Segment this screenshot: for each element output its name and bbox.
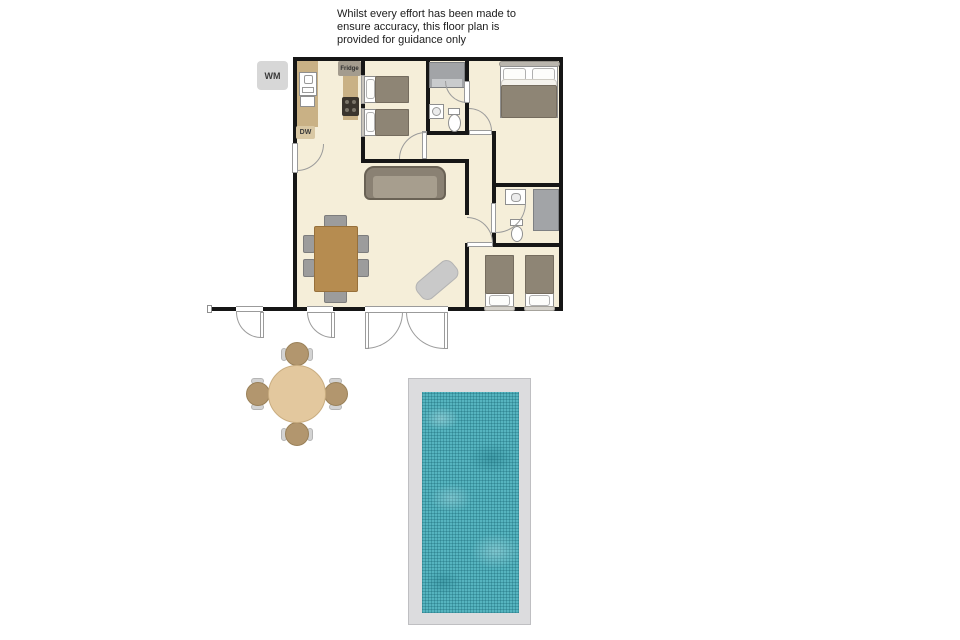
shower-icon xyxy=(533,189,559,231)
double-bed-icon xyxy=(499,61,560,119)
wall xyxy=(492,183,559,187)
dining-chair-icon xyxy=(357,259,369,277)
patio-chair-icon xyxy=(283,340,311,368)
dishwasher-label: DW xyxy=(296,126,315,139)
door-leaf xyxy=(444,312,448,349)
door-arc-icon xyxy=(365,312,403,349)
toilet-icon xyxy=(448,108,462,133)
door-arc-icon xyxy=(307,312,333,338)
wall xyxy=(492,243,559,247)
single-bed-icon xyxy=(361,108,409,137)
dining-chair-icon xyxy=(357,235,369,253)
door-arc-icon xyxy=(445,81,467,103)
basin-icon xyxy=(429,104,444,119)
wall xyxy=(465,159,469,215)
door-arc-icon xyxy=(236,312,261,338)
sink-bowl-icon xyxy=(302,87,314,93)
wall xyxy=(492,131,496,203)
washing-machine-label: WM xyxy=(257,61,288,90)
wall xyxy=(361,159,469,163)
patio-chair-icon xyxy=(322,380,350,408)
door-arc-icon xyxy=(469,108,492,131)
floor-plan-page: Whilst every effort has been made to ens… xyxy=(0,0,960,640)
wall xyxy=(465,243,469,307)
single-bed-icon xyxy=(484,255,515,312)
door-arc-icon xyxy=(406,312,444,349)
hob-icon xyxy=(342,97,359,116)
pool-water xyxy=(422,392,519,613)
dining-table-icon xyxy=(314,226,358,292)
patio-chair-icon xyxy=(283,420,311,448)
single-bed-icon xyxy=(361,75,409,104)
wall-end-cap xyxy=(207,305,212,313)
sofa-icon xyxy=(364,166,446,200)
door-arc-icon xyxy=(297,144,324,171)
patio-table-icon xyxy=(268,365,326,423)
door-arc-icon xyxy=(467,217,493,243)
wall xyxy=(465,61,469,81)
fridge-label: Fridge xyxy=(338,61,361,76)
single-bed-icon xyxy=(524,255,555,312)
disclaimer-text: Whilst every effort has been made to ens… xyxy=(337,8,567,47)
kitchen-sink-icon xyxy=(299,72,317,96)
sink-tap-icon xyxy=(304,75,313,84)
kitchen-unit xyxy=(300,96,315,107)
rug-icon xyxy=(412,257,461,303)
floor-plan: DW Fridge xyxy=(293,57,563,311)
pool xyxy=(408,378,531,625)
